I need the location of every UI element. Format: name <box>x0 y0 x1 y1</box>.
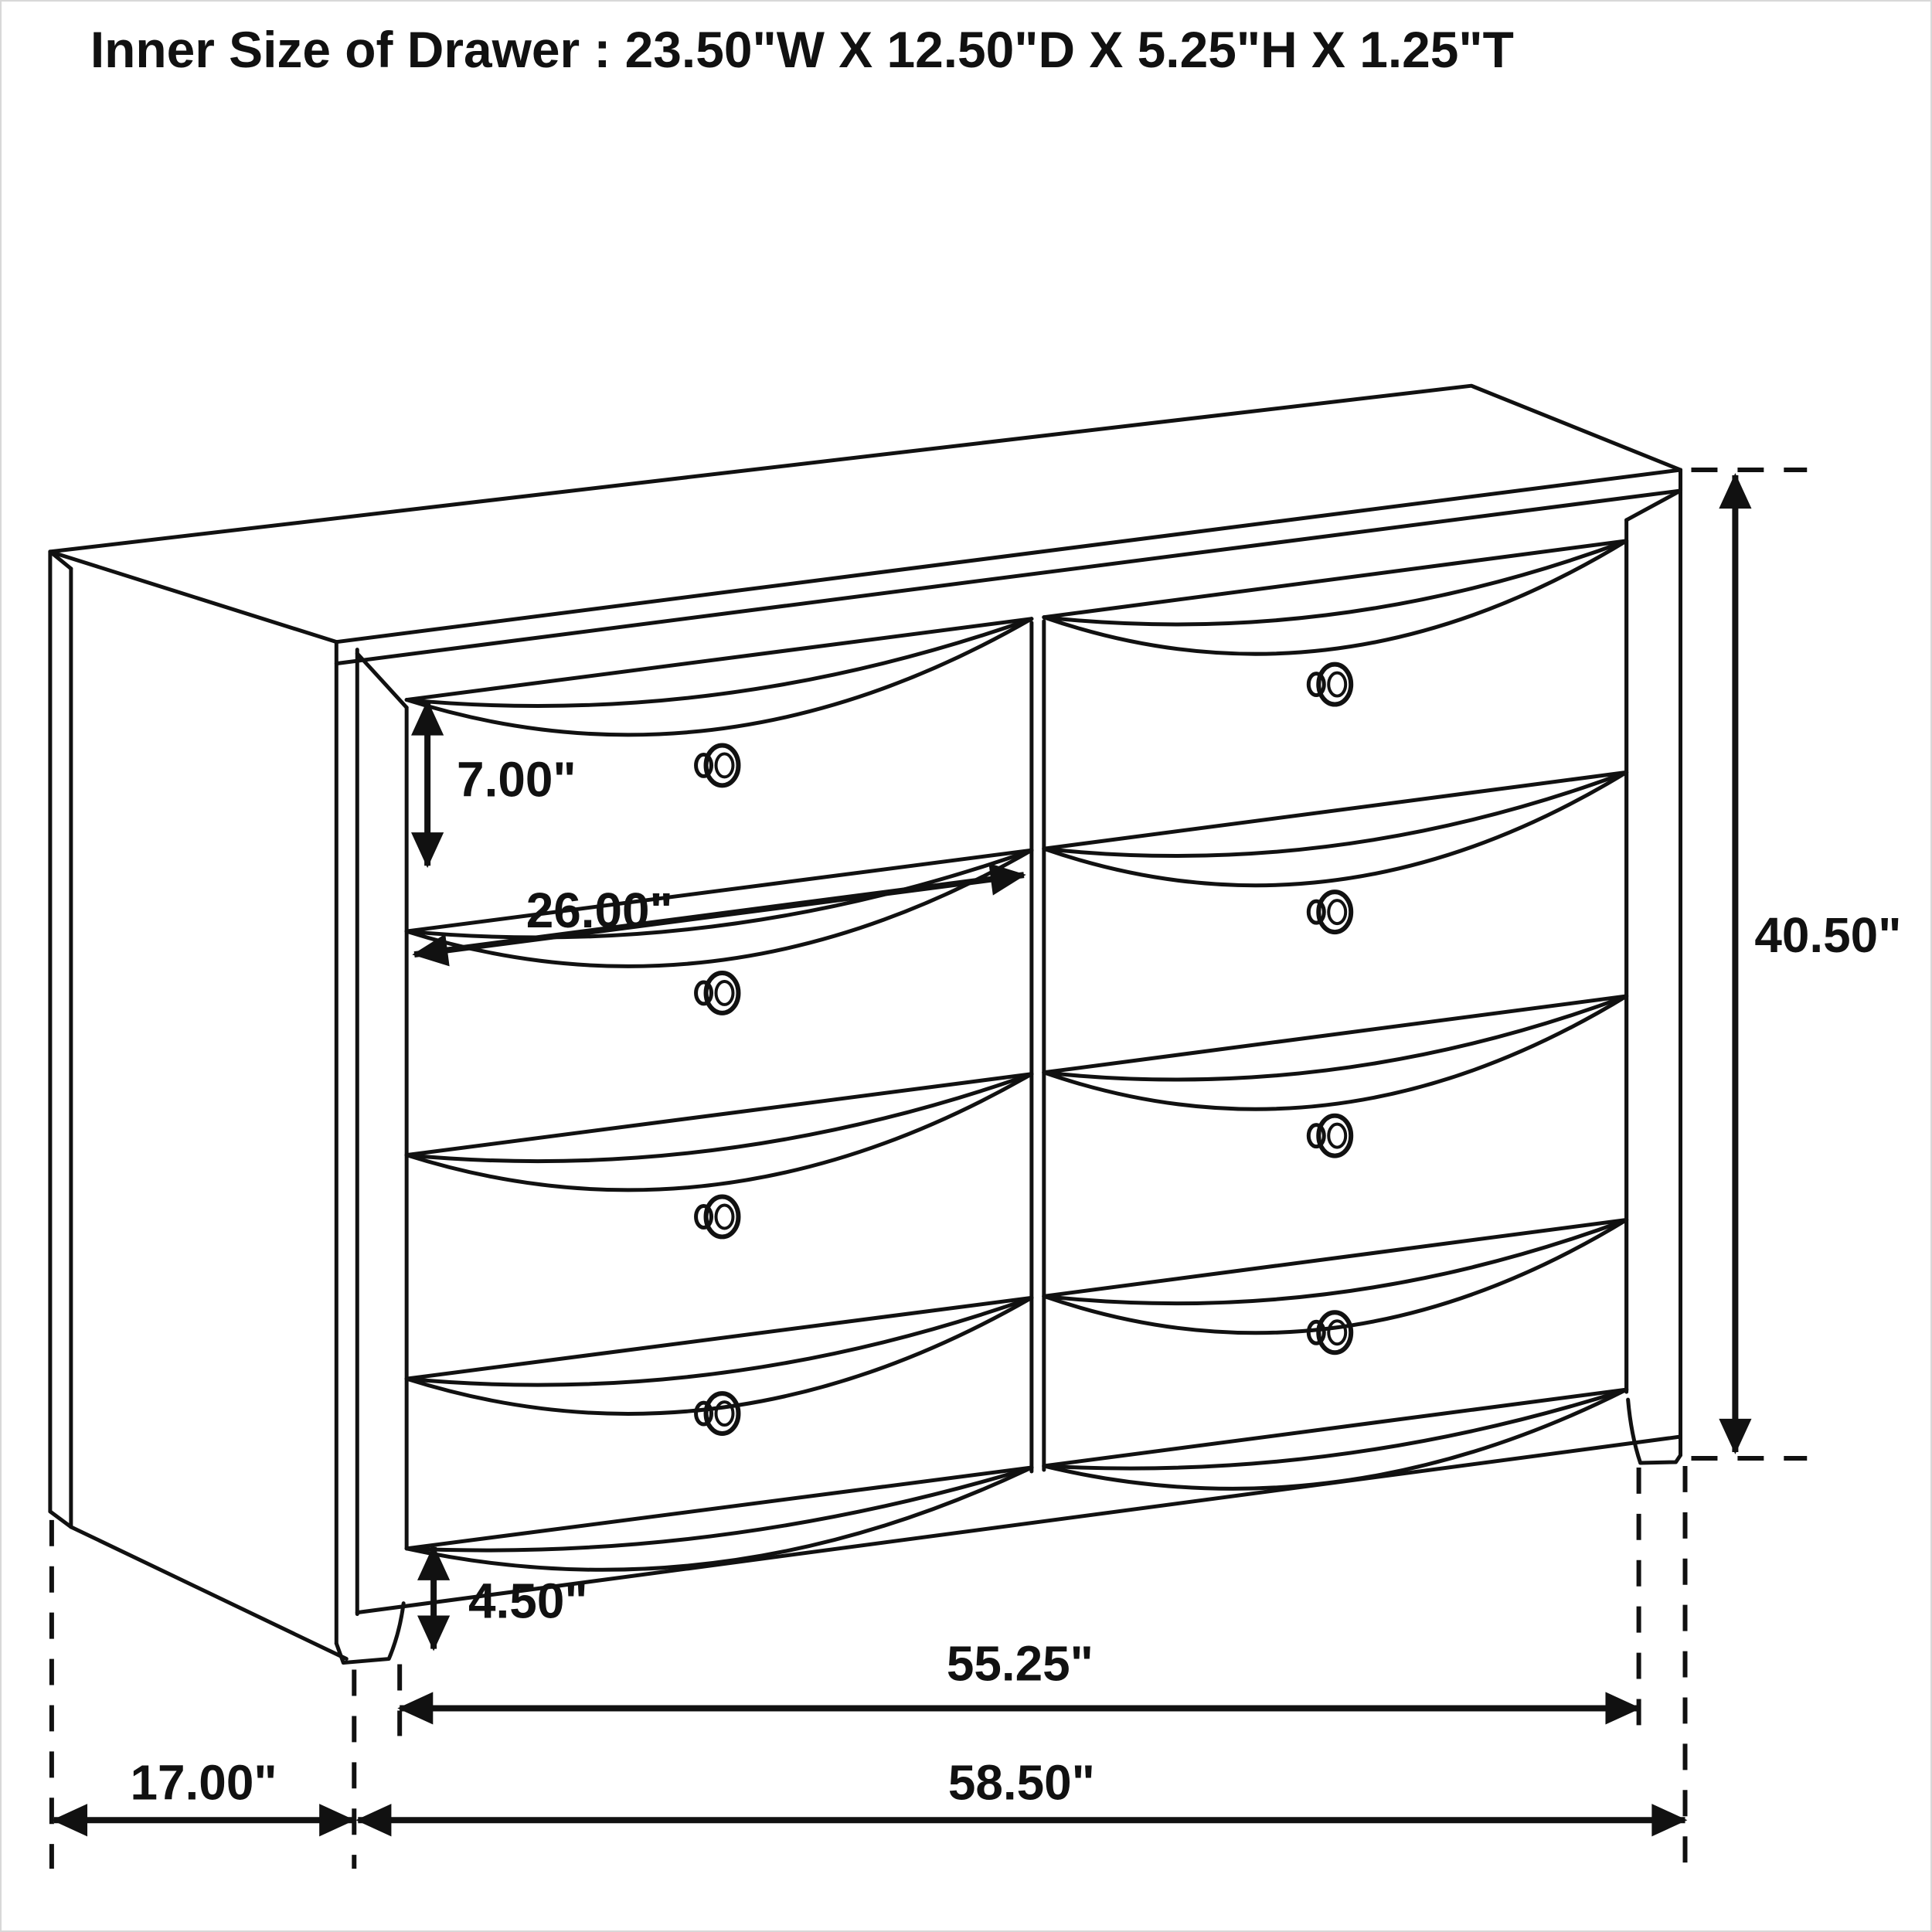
drawer-knob <box>1308 892 1351 932</box>
label-leg-height: 4.50" <box>468 1573 588 1629</box>
drawer-knob <box>696 745 739 785</box>
front-left-stile <box>336 642 406 1644</box>
dresser-drawing <box>50 386 1681 1662</box>
label-drawer-width: 26.00" <box>526 883 673 938</box>
dimension-annotations <box>54 475 1736 1820</box>
label-total-width: 58.50" <box>948 1754 1095 1810</box>
extension-lines <box>52 470 1807 1869</box>
drawer-knob <box>1308 1116 1351 1156</box>
center-divider <box>1032 621 1044 1471</box>
label-width-between-legs: 55.25" <box>947 1636 1094 1692</box>
drawer-area-frame <box>406 542 1626 1549</box>
right-column-drawer-fronts <box>1044 541 1627 1489</box>
top-face <box>50 386 1681 663</box>
drawer-knobs-left <box>696 745 739 1434</box>
drawer-knob <box>696 1197 739 1237</box>
drawer-knob <box>1308 1312 1351 1352</box>
side-panel <box>50 552 346 1659</box>
drawer-knob <box>1308 665 1351 705</box>
label-drawer-height: 7.00" <box>457 751 577 807</box>
label-total-height: 40.50" <box>1754 907 1901 963</box>
drawer-knob <box>696 1393 739 1434</box>
dimension-labels: 7.00" 26.00" 40.50" 4.50" 55.25" 17.00" … <box>131 751 1902 1810</box>
front-right-stile <box>1627 470 1681 1455</box>
front-right-leg <box>1628 1400 1681 1463</box>
dresser-dimension-diagram: Inner Size of Drawer : 23.50"W X 12.50"D… <box>0 0 1932 1932</box>
page-title: Inner Size of Drawer : 23.50"W X 12.50"D… <box>90 21 1514 78</box>
dimension-drawer-width <box>414 875 1024 954</box>
diagram-svg: Inner Size of Drawer : 23.50"W X 12.50"D… <box>2 2 1930 1930</box>
label-side-depth: 17.00" <box>131 1754 277 1810</box>
drawer-knob <box>696 973 739 1013</box>
drawer-knobs-right <box>1308 665 1351 1353</box>
